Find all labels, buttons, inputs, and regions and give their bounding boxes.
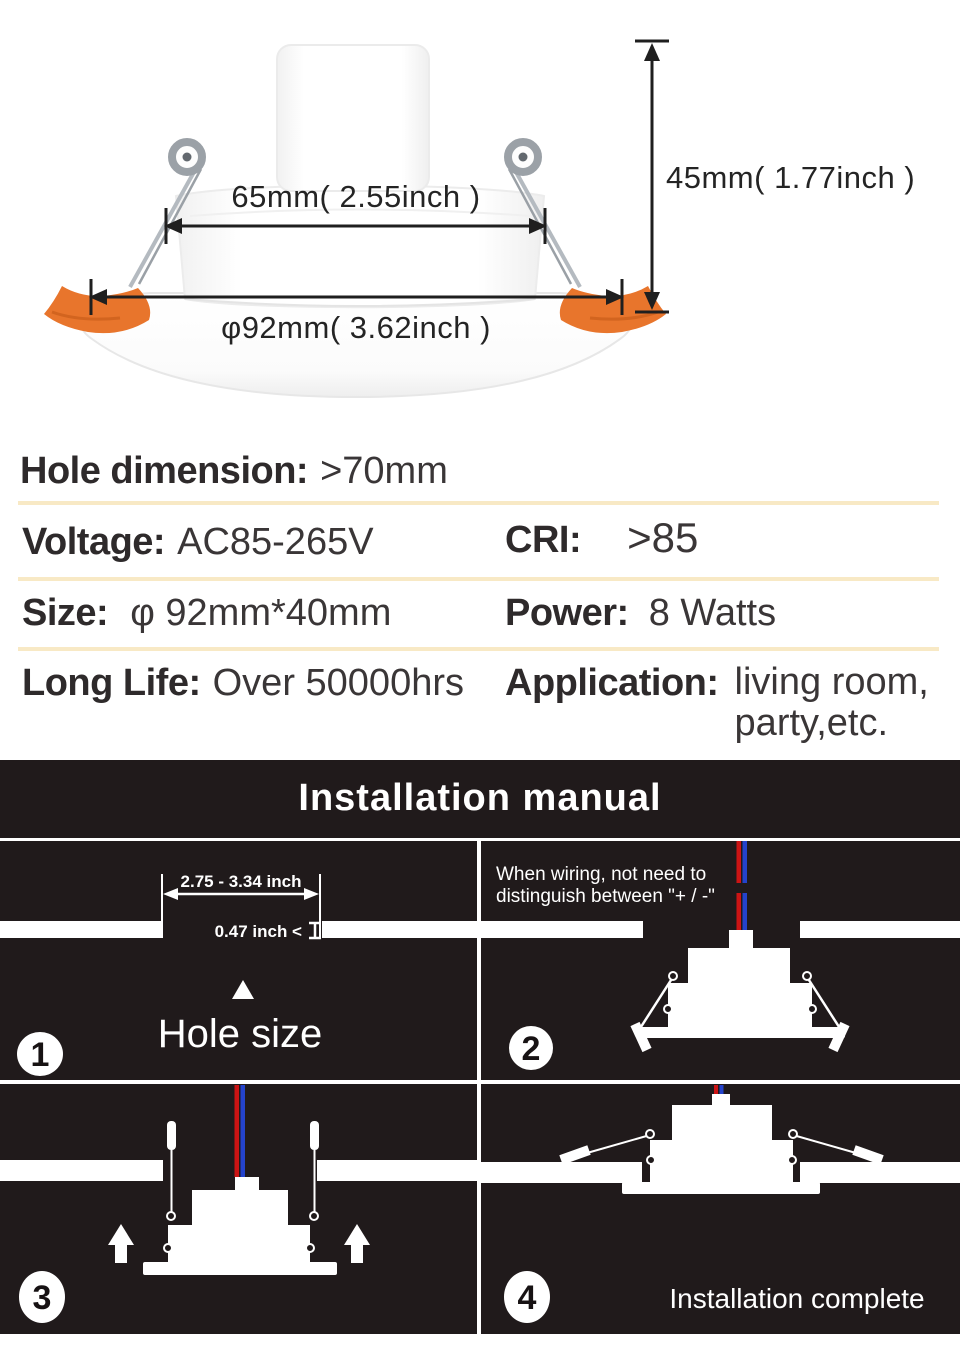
- triangle-pointer-icon: [232, 980, 254, 999]
- right-arrowhead-icon: [304, 888, 319, 900]
- installation-steps-diagram: 2.75 - 3.34 inch 0.47 inch < Hole size 1…: [0, 838, 960, 1334]
- ceiling-right: [800, 1162, 960, 1183]
- divider: [18, 577, 939, 581]
- spec-row-voltage: Voltage:AC85-265V: [22, 521, 374, 563]
- application-line2: party,etc.: [735, 702, 888, 744]
- spec-label-long-life: Long Life:: [22, 662, 201, 704]
- ceiling-left: [0, 1160, 163, 1181]
- downlight-silhouette: [635, 930, 845, 1050]
- divider: [18, 501, 939, 505]
- step1-number: 1: [31, 1036, 50, 1074]
- ceiling-right: [322, 921, 478, 938]
- dim-height: 45mm( 1.77inch ): [635, 41, 915, 312]
- step4-caption: Installation complete: [669, 1283, 924, 1314]
- spring-arm-right: [807, 977, 841, 1030]
- wire-red: [714, 1085, 718, 1094]
- step2-panel: When wiring, not need to distinguish bet…: [480, 841, 960, 1070]
- spring-arm-left: [639, 977, 673, 1030]
- ceiling-right: [317, 1160, 478, 1181]
- ceiling-left: [480, 921, 643, 938]
- spring-handle-right: [310, 1121, 319, 1150]
- spec-value-voltage: AC85-265V: [177, 521, 373, 563]
- step4-number-badge: 4: [504, 1271, 550, 1323]
- product-dimension-diagram: 65mm( 2.55inch ) φ92mm( 3.62inch ) 45mm(…: [0, 0, 960, 430]
- wire-blue: [241, 1085, 246, 1177]
- spring-arm-left: [580, 1135, 650, 1155]
- spring-handle-left: [167, 1121, 176, 1150]
- spec-label-hole-dimension: Hole dimension:: [20, 450, 308, 492]
- spec-row-cri: CRI:>85: [505, 517, 698, 561]
- divider: [18, 647, 939, 651]
- dim-top-width-label: 65mm( 2.55inch ): [231, 179, 480, 214]
- spec-row-hole-dimension: Hole dimension:>70mm: [20, 450, 448, 492]
- spring-arm-right: [793, 1135, 863, 1155]
- up-arrowhead-icon: [644, 43, 660, 61]
- spec-label-voltage: Voltage:: [22, 521, 165, 563]
- spec-value-hole-dimension: >70mm: [320, 450, 448, 492]
- ceiling-left: [0, 921, 162, 938]
- step2-number-badge: 2: [509, 1026, 553, 1070]
- dim-bottom-diameter-label: φ92mm( 3.62inch ): [221, 310, 491, 345]
- step1-panel: 2.75 - 3.34 inch 0.47 inch < Hole size 1: [0, 872, 478, 1076]
- dim-height-label: 45mm( 1.77inch ): [666, 160, 915, 195]
- wire-red: [235, 1085, 240, 1177]
- manual-title: Installation manual: [0, 776, 960, 820]
- left-arrowhead-icon: [163, 888, 178, 900]
- wire-blue: [743, 841, 748, 930]
- spring-handle-right: [854, 1150, 882, 1160]
- ceiling-thickness-label: 0.47 inch <: [215, 922, 302, 941]
- spec-row-size: Size:φ 92mm*40mm: [22, 592, 391, 634]
- spring-handle-left: [561, 1150, 589, 1160]
- spec-value-cri: >85: [627, 514, 698, 561]
- spec-row-application: Application:living room,party,etc.: [505, 662, 929, 744]
- step4-panel: Installation complete 4: [480, 1085, 960, 1323]
- spec-value-size: φ 92mm*40mm: [130, 592, 391, 634]
- lamp-trim-flange: [622, 1182, 820, 1194]
- ceiling-right: [800, 921, 960, 938]
- wiring-note-line1: When wiring, not need to: [496, 864, 706, 885]
- wiring-note-line2: distinguish between "+ / -": [496, 886, 715, 907]
- spec-label-power: Power:: [505, 592, 629, 634]
- lamp-flange: [81, 293, 631, 397]
- clip-orange-left: [44, 286, 150, 333]
- spec-label-application: Application:: [505, 662, 719, 704]
- spec-value-power: 8 Watts: [649, 592, 776, 634]
- application-line1: living room,: [735, 661, 929, 703]
- spec-label-cri: CRI:: [505, 519, 581, 561]
- up-arrow-icon: [108, 1224, 134, 1263]
- step3-number: 3: [33, 1279, 52, 1317]
- vertical-border: [477, 838, 481, 1334]
- step2-number: 2: [522, 1030, 541, 1068]
- step1-caption: Hole size: [158, 1012, 323, 1056]
- spec-value-application: living room,party,etc.: [735, 662, 929, 744]
- wire-red: [737, 841, 742, 930]
- ceiling-left: [480, 1162, 642, 1183]
- spec-row-power: Power:8 Watts: [505, 592, 776, 634]
- step1-number-badge: 1: [17, 1032, 63, 1076]
- step3-panel: 3: [0, 1085, 478, 1323]
- hole-width-label: 2.75 - 3.34 inch: [181, 872, 302, 891]
- extension-line: [319, 874, 321, 938]
- up-arrow-icon: [344, 1224, 370, 1263]
- extension-line: [161, 874, 163, 938]
- step4-number: 4: [518, 1279, 537, 1317]
- product-infographic: 65mm( 2.55inch ) φ92mm( 3.62inch ) 45mm(…: [0, 0, 960, 1345]
- driver-box: [277, 45, 429, 191]
- spec-value-long-life: Over 50000hrs: [213, 662, 464, 704]
- step3-number-badge: 3: [19, 1271, 65, 1323]
- spec-row-long-life: Long Life:Over 50000hrs: [22, 662, 464, 704]
- installation-manual: Installation manual 2.75 - 3.34 inch 0.4…: [0, 760, 960, 1334]
- downlight-silhouette: [143, 1121, 337, 1275]
- wire-blue: [720, 1085, 724, 1094]
- spec-label-size: Size:: [22, 592, 108, 634]
